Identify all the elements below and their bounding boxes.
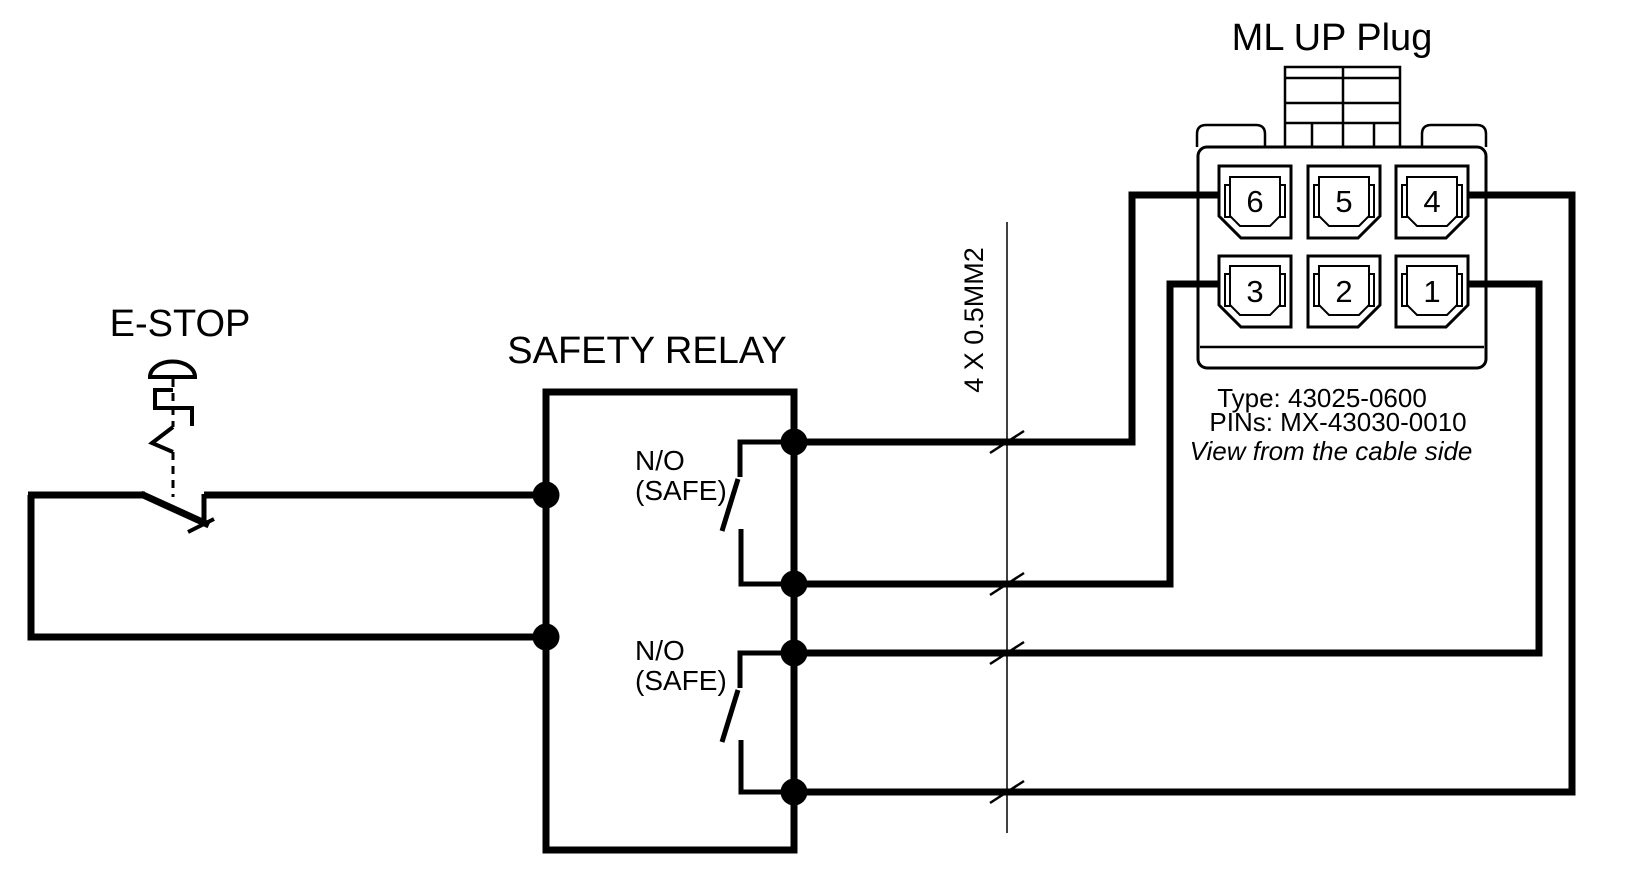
wiring-diagram: 4 X 0.5MM2 E-STOP SAFETY RELAY N/O (SAFE… [0,0,1629,876]
connector-pins-text: PINs: MX-43030-0010 [1209,407,1466,437]
safety-relay-label: SAFETY RELAY [507,330,786,372]
pin-2: 2 [1308,256,1380,327]
junction-dot [781,429,808,456]
pin-4: 4 [1396,166,1468,238]
junction-dot [533,624,560,651]
connector-annotation: Type: 43025-0600 PINs: MX-43030-0010 Vie… [1190,383,1473,466]
cable-label: 4 X 0.5MM2 [959,247,989,393]
connector-ear-left-icon [1197,125,1265,147]
connector-latch-icon [1285,67,1400,147]
pin-5-number: 5 [1335,184,1352,219]
wire-estop-return [31,495,546,637]
junction-dot [781,571,808,598]
estop-mushroom-head-icon [150,362,195,378]
junction-dot [781,779,808,806]
relay-contact-1-label-line1: N/O [635,445,685,476]
junction-dot [533,482,560,509]
pin-2-number: 2 [1335,274,1352,309]
relay-contact-2: N/O (SAFE) [635,635,794,792]
connector-ear-right-icon [1422,125,1486,147]
connector-title: ML UP Plug [1232,17,1433,59]
estop-switch-blade [141,494,209,525]
relay-contact-1-label-line2: (SAFE) [635,475,727,506]
pin-3-number: 3 [1246,274,1263,309]
pin-1-number: 1 [1423,274,1440,309]
cable-callout: 4 X 0.5MM2 [959,222,1024,833]
relay-contact-2-label-line2: (SAFE) [635,665,727,696]
pin-5: 5 [1308,166,1380,238]
wiring-diagram-page: 4 X 0.5MM2 E-STOP SAFETY RELAY N/O (SAFE… [0,0,1629,876]
relay-contact-1: N/O (SAFE) [635,442,794,584]
pin-6-number: 6 [1246,184,1263,219]
estop-label: E-STOP [110,303,251,345]
pin-3: 3 [1219,256,1291,327]
pin-6: 6 [1219,166,1291,238]
pin-4-number: 4 [1423,184,1440,219]
relay-contact-2-blade [722,690,738,742]
connector-view-text: View from the cable side [1190,436,1473,466]
relay-contact-2-label-line1: N/O [635,635,685,666]
estop-spring-icon [152,427,173,452]
pin-1: 1 [1396,256,1468,327]
safety-relay: SAFETY RELAY N/O (SAFE) N/O (SAFE) [507,330,807,850]
estop-switch-contact [141,494,214,532]
junction-dot [781,640,808,667]
